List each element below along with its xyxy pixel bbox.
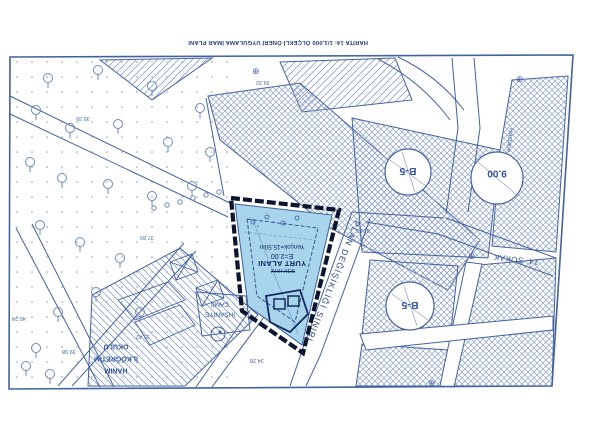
map-title: HARİTA 14: 1/1.000 ÖLÇEKLİ ÖNERİ UYGULAM… [178, 38, 378, 45]
benchmark-icon: ⊕ [428, 378, 436, 389]
zone-b5-lower-label: B-5 [392, 298, 428, 311]
parcel-emsal: E=2.00 [236, 250, 328, 259]
road-width-label: 9.00 [478, 166, 516, 179]
zone-b5-upper-label: B-5 [390, 164, 426, 177]
school-label-line2: İLKÖĞRETİM [62, 352, 170, 364]
mosque-label: İHSANİYE CAMİİ [190, 299, 250, 319]
school-label: HANIM İLKÖĞRETİM OKULU [62, 340, 170, 376]
elevation-label: 40.24 [12, 314, 26, 321]
elevation-label: 39.32 [256, 78, 270, 85]
struck-out-label: XHH XES [252, 269, 314, 276]
elevation-label: 37.89 [140, 233, 154, 240]
elevation-label: 39.35 [76, 114, 90, 121]
elevation-label: 35.42 [136, 332, 150, 339]
scanned-imar-plan-map: HARİTA 14: 1/1.000 ÖLÇEKLİ ÖNERİ UYGULAM… [0, 0, 600, 425]
mosque-label-line2: CAMİİ [190, 299, 250, 309]
parcel-label-block: YURT ALANI E=2.00 Yençok=15.50m [236, 242, 328, 268]
school-label-line1: HANIM [62, 364, 170, 376]
elevation-label: 31.85 [356, 226, 370, 233]
mosque-label-line1: İHSANİYE [190, 309, 250, 319]
benchmark-icon: ⊕ [252, 66, 260, 77]
elevation-label: 39.98 [62, 347, 76, 354]
benchmark-icon: ⊕ [516, 74, 524, 85]
elevation-label: 34.28 [250, 356, 264, 363]
parcel-height: Yençok=15.50m [236, 242, 328, 250]
benchmark-icon: ⊕ [468, 251, 476, 262]
parcel-designation: YURT ALANI [236, 259, 328, 268]
school-label-line3: OKULU [62, 340, 170, 352]
